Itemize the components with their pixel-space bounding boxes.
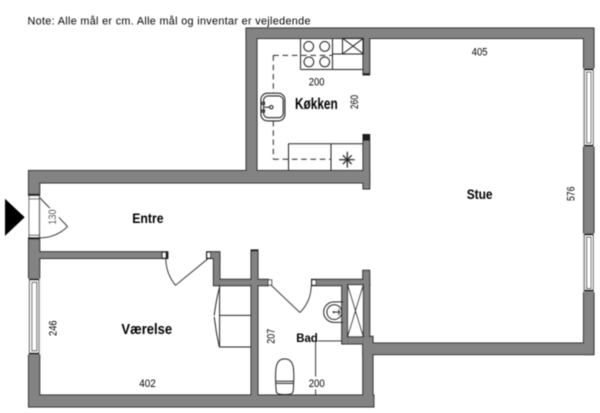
- svg-text:Note: Alle mål er cm. Alle mål: Note: Alle mål er cm. Alle mål og invent…: [28, 16, 311, 28]
- svg-text:260: 260: [349, 95, 361, 109]
- svg-text:246: 246: [47, 320, 59, 336]
- svg-text:402: 402: [139, 378, 156, 390]
- svg-text:Køkken: Køkken: [295, 96, 338, 113]
- svg-text:130: 130: [47, 209, 59, 224]
- svg-text:200: 200: [309, 77, 325, 89]
- svg-text:207: 207: [266, 329, 278, 344]
- svg-text:405: 405: [472, 47, 488, 59]
- svg-text:Værelse: Værelse: [121, 322, 172, 338]
- svg-text:200: 200: [309, 378, 325, 390]
- svg-text:Stue: Stue: [467, 187, 493, 202]
- svg-text:576: 576: [566, 186, 578, 201]
- svg-text:Entre: Entre: [132, 210, 163, 226]
- svg-text:Bad: Bad: [296, 331, 318, 345]
